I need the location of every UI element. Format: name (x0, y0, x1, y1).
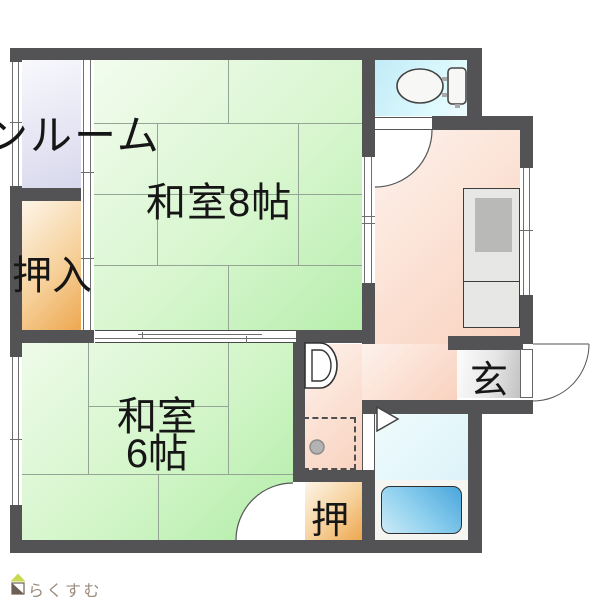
tatami-line (88, 343, 89, 474)
oshiire-label: 押入 (12, 243, 92, 301)
tatami-line (298, 123, 299, 266)
kitchen-stove-icon (475, 198, 512, 252)
wall-washing-divider (293, 470, 375, 482)
wall-mid-left (10, 330, 94, 343)
tatami-line (228, 60, 229, 123)
window-washitsu6-left (10, 357, 22, 505)
kitchen-counter-lower (463, 281, 520, 328)
entrance-door-leaf (520, 349, 533, 398)
floorplan-canvas: ンルーム 和室8帖 押入 和室 6帖 玄 押 らくすむ (0, 0, 600, 600)
logo-text: らくすむ (28, 577, 102, 600)
washing-machine-space (303, 417, 356, 470)
washitsu8-label: 和室8帖 (146, 170, 292, 228)
sliding-door-washitsu8-right (362, 157, 375, 283)
window-kitchen-right (520, 168, 533, 295)
kitchen-counter (463, 188, 520, 282)
logo-house-icon (11, 574, 26, 595)
washitsu6-label: 和室 6帖 (92, 399, 222, 473)
oshi-label: 押 (311, 489, 349, 544)
bathroom-door (362, 414, 375, 470)
wall-genkan-top (448, 336, 523, 350)
wall-right-lower (468, 414, 482, 553)
wall-toilet-right (467, 48, 482, 118)
toilet-floor (375, 60, 467, 116)
toilet-door (375, 117, 432, 130)
bathtub-icon (381, 486, 462, 534)
entrance-door-arc (533, 344, 589, 401)
washitsu6-label-line2: 6帖 (126, 432, 188, 476)
genkan-label: 玄 (470, 349, 508, 404)
kitchen-floor-lower (362, 344, 457, 400)
wall-bottom (10, 540, 482, 553)
sunroom-label: ンルーム (0, 102, 161, 163)
fusuma-washitsu8-bottom (95, 330, 296, 343)
wall-washitsu6-right (293, 343, 305, 482)
tatami-line (228, 343, 229, 474)
wall-top (10, 48, 482, 60)
wall-toilet-bottom (432, 116, 533, 130)
tatami-line (228, 265, 229, 330)
tatami-line (158, 474, 159, 540)
wall-oshi-right (362, 482, 375, 540)
washitsu6-door-leaf (293, 482, 305, 540)
